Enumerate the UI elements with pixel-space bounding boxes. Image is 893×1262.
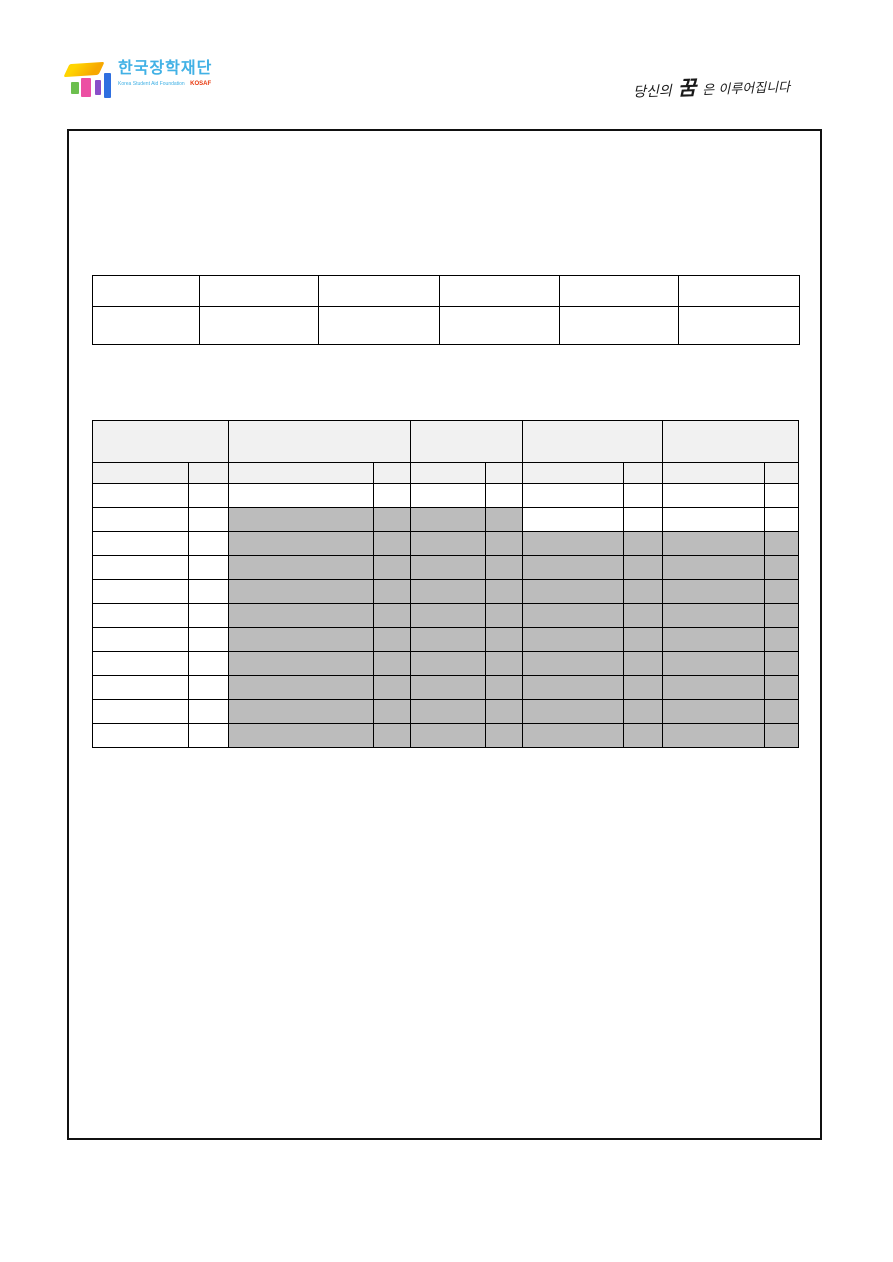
table-row (93, 556, 799, 580)
shaded-cell (411, 724, 486, 748)
header-cell (624, 463, 663, 484)
header-cell (229, 421, 411, 463)
shaded-cell (523, 652, 624, 676)
logo-subtitle-line: Korea Student Aid Foundation KOSAF (118, 81, 226, 87)
table-row (93, 676, 799, 700)
shaded-cell (374, 724, 411, 748)
table-row (93, 580, 799, 604)
shaded-cell (523, 628, 624, 652)
shaded-cell (374, 580, 411, 604)
shaded-cell (663, 700, 765, 724)
shaded-cell (486, 532, 523, 556)
empty-cell (93, 508, 189, 532)
shaded-cell (523, 532, 624, 556)
header-cell (374, 463, 411, 484)
empty-cell (93, 700, 189, 724)
shaded-cell (486, 580, 523, 604)
shaded-cell (523, 604, 624, 628)
shaded-cell (486, 724, 523, 748)
shaded-cell (411, 652, 486, 676)
empty-cell (319, 276, 440, 307)
table-row (93, 508, 799, 532)
empty-cell (229, 484, 374, 508)
empty-cell (189, 604, 229, 628)
empty-cell (189, 652, 229, 676)
shaded-cell (624, 628, 663, 652)
shaded-cell (663, 628, 765, 652)
empty-cell (189, 532, 229, 556)
shaded-cell (486, 556, 523, 580)
logo-block-purple (95, 80, 101, 95)
shaded-cell (523, 700, 624, 724)
slogan: 당신의 꿈 은 이루어집니다 (570, 68, 791, 105)
shaded-cell (523, 580, 624, 604)
shaded-cell (229, 628, 374, 652)
shaded-cell (663, 556, 765, 580)
shaded-cell (229, 508, 374, 532)
cap-top-shape (63, 62, 104, 77)
empty-cell (93, 724, 189, 748)
shaded-cell (229, 580, 374, 604)
header-cell (93, 421, 229, 463)
empty-cell (319, 307, 440, 345)
empty-cell (189, 700, 229, 724)
empty-cell (93, 556, 189, 580)
header-cell (765, 463, 799, 484)
shaded-cell (486, 676, 523, 700)
header-cell (523, 463, 624, 484)
shaded-cell (663, 532, 765, 556)
shaded-cell (624, 556, 663, 580)
shaded-cell (486, 604, 523, 628)
shaded-cell (663, 580, 765, 604)
empty-cell (189, 628, 229, 652)
shaded-cell (765, 532, 799, 556)
shaded-cell (374, 556, 411, 580)
empty-cell (679, 276, 800, 307)
empty-cell (200, 307, 319, 345)
shaded-cell (624, 700, 663, 724)
shaded-cell (411, 628, 486, 652)
empty-cell (189, 580, 229, 604)
empty-cell (93, 276, 200, 307)
shaded-cell (486, 700, 523, 724)
shaded-cell (663, 652, 765, 676)
empty-cell (440, 276, 560, 307)
kosaf-logo: 한국장학재단 Korea Student Aid Foundation KOSA… (66, 56, 226, 106)
empty-cell (189, 484, 229, 508)
shaded-cell (229, 556, 374, 580)
shaded-cell (411, 604, 486, 628)
empty-cell (374, 484, 411, 508)
empty-cell (189, 508, 229, 532)
empty-cell (486, 484, 523, 508)
graduation-cap-icon (66, 58, 114, 102)
empty-cell (93, 307, 200, 345)
header-cell (411, 463, 486, 484)
shaded-cell (486, 628, 523, 652)
shaded-cell (765, 556, 799, 580)
empty-cell (200, 276, 319, 307)
header-cell (486, 463, 523, 484)
shaded-cell (486, 508, 523, 532)
shaded-cell (374, 604, 411, 628)
header-cell (523, 421, 663, 463)
logo-text: 한국장학재단 Korea Student Aid Foundation KOSA… (118, 60, 226, 87)
shaded-cell (624, 604, 663, 628)
shaded-cell (663, 724, 765, 748)
empty-cell (93, 580, 189, 604)
shaded-cell (229, 700, 374, 724)
empty-cell (624, 484, 663, 508)
table-row (93, 724, 799, 748)
shaded-cell (624, 676, 663, 700)
shaded-cell (411, 700, 486, 724)
empty-cell (93, 484, 189, 508)
slogan-part2: 꿈 (677, 75, 696, 100)
header-cell (229, 463, 374, 484)
table-row (93, 628, 799, 652)
shaded-cell (663, 676, 765, 700)
shaded-schedule-table-grid (92, 420, 799, 748)
table-row (93, 532, 799, 556)
empty-cell (93, 532, 189, 556)
shaded-cell (374, 700, 411, 724)
table-row (93, 484, 799, 508)
shaded-cell (765, 580, 799, 604)
shaded-cell (229, 604, 374, 628)
empty-form-table-grid (92, 275, 800, 345)
table-row (93, 307, 800, 345)
empty-cell (93, 676, 189, 700)
empty-cell (93, 652, 189, 676)
shaded-cell (411, 532, 486, 556)
slogan-part1: 당신의 (633, 83, 672, 100)
empty-cell (440, 307, 560, 345)
empty-cell (663, 508, 765, 532)
logo-block-green (71, 82, 79, 94)
shaded-cell (765, 604, 799, 628)
shaded-cell (663, 604, 765, 628)
logo-acronym: KOSAF (190, 81, 211, 87)
shaded-schedule-table (92, 420, 799, 748)
table-row (93, 463, 799, 484)
shaded-cell (523, 556, 624, 580)
empty-cell (523, 484, 624, 508)
shaded-cell (523, 676, 624, 700)
shaded-cell (765, 676, 799, 700)
shaded-cell (765, 652, 799, 676)
shaded-cell (374, 676, 411, 700)
empty-cell (624, 508, 663, 532)
logo-title: 한국장학재단 (118, 60, 226, 78)
shaded-cell (411, 676, 486, 700)
header-cell (663, 463, 765, 484)
empty-cell (560, 307, 679, 345)
table-row (93, 604, 799, 628)
slogan-part3: 은 이루어집니다 (702, 80, 790, 98)
table-row (93, 652, 799, 676)
empty-cell (663, 484, 765, 508)
shaded-cell (624, 724, 663, 748)
shaded-cell (229, 532, 374, 556)
shaded-cell (374, 508, 411, 532)
shaded-cell (229, 676, 374, 700)
shaded-cell (523, 724, 624, 748)
shaded-cell (624, 652, 663, 676)
table-row (93, 700, 799, 724)
shaded-cell (374, 628, 411, 652)
empty-cell (411, 484, 486, 508)
shaded-cell (624, 532, 663, 556)
header-cell (663, 421, 799, 463)
empty-cell (189, 676, 229, 700)
empty-cell (679, 307, 800, 345)
empty-cell (93, 628, 189, 652)
shaded-cell (411, 556, 486, 580)
logo-block-blue (104, 73, 111, 98)
shaded-cell (374, 652, 411, 676)
shaded-cell (411, 508, 486, 532)
shaded-cell (765, 628, 799, 652)
logo-subtitle: Korea Student Aid Foundation (118, 81, 185, 87)
shaded-cell (624, 580, 663, 604)
shaded-cell (765, 724, 799, 748)
empty-cell (523, 508, 624, 532)
shaded-cell (229, 652, 374, 676)
shaded-cell (374, 532, 411, 556)
logo-block-pink (81, 78, 91, 97)
empty-cell (189, 556, 229, 580)
empty-cell (560, 276, 679, 307)
empty-cell (765, 508, 799, 532)
header-cell (411, 421, 523, 463)
empty-cell (765, 484, 799, 508)
shaded-cell (411, 580, 486, 604)
document-page: 한국장학재단 Korea Student Aid Foundation KOSA… (0, 0, 893, 1262)
table-row (93, 276, 800, 307)
shaded-cell (229, 724, 374, 748)
empty-cell (189, 724, 229, 748)
header-cell (93, 463, 189, 484)
empty-cell (93, 604, 189, 628)
shaded-cell (765, 700, 799, 724)
shaded-cell (486, 652, 523, 676)
empty-form-table (92, 275, 800, 345)
table-row (93, 421, 799, 463)
header-cell (189, 463, 229, 484)
